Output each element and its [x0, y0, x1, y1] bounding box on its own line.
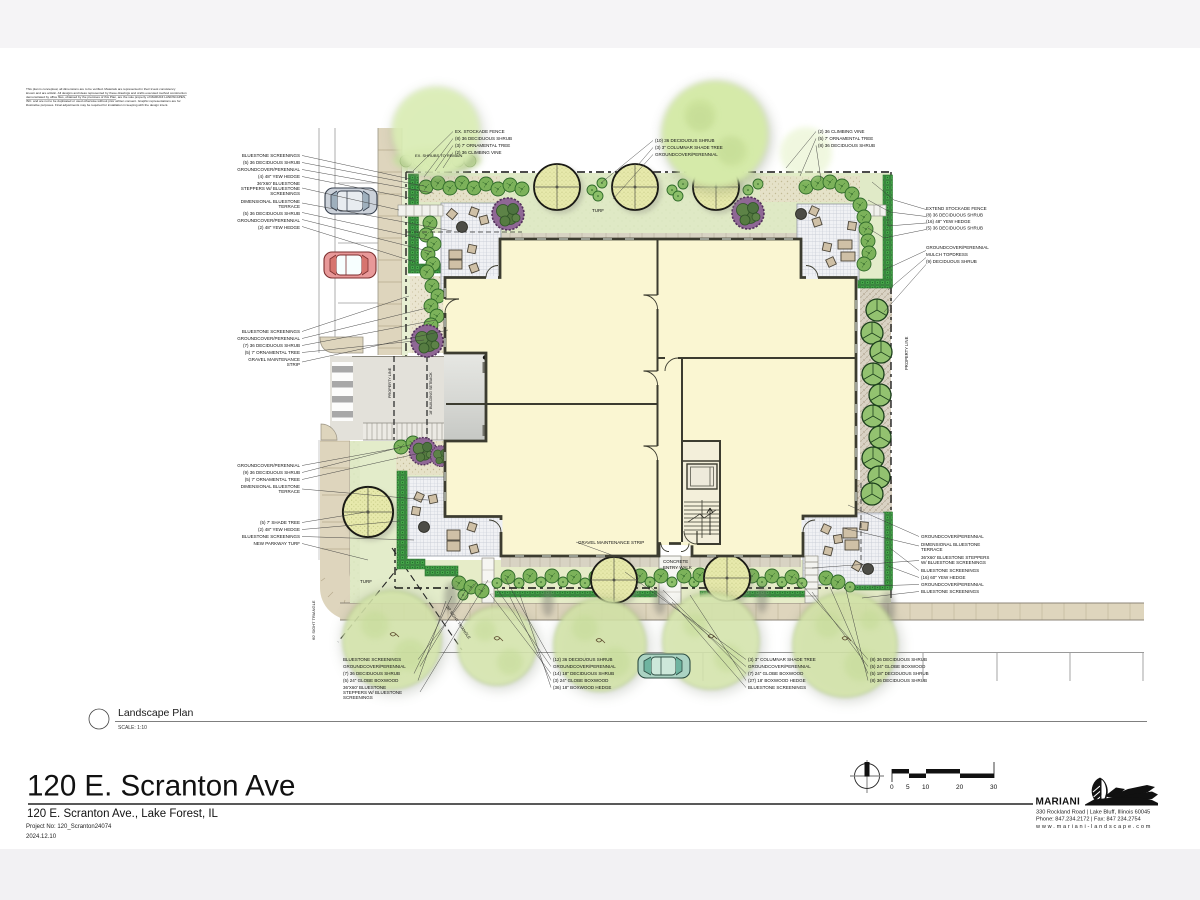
svg-text:(36) 18" BOXWOOD HEDGE: (36) 18" BOXWOOD HEDGE: [553, 685, 611, 690]
svg-text:(2) 36 CLIMBING VINE: (2) 36 CLIMBING VINE: [818, 129, 865, 134]
svg-text:(16) 60" YEW HEDGE: (16) 60" YEW HEDGE: [921, 575, 966, 580]
svg-text:MULCH TOPDRESS: MULCH TOPDRESS: [926, 252, 968, 257]
svg-text:Phone: 847.234.2172 | Fax: 847: Phone: 847.234.2172 | Fax: 847 234.2754: [1036, 817, 1141, 823]
svg-text:GROUNDCOVER/PERENNIAL: GROUNDCOVER/PERENNIAL: [237, 336, 300, 341]
svg-text:illustrative purposes. Final a: illustrative purposes. Final adjustments…: [26, 103, 168, 107]
svg-text:TERRACE: TERRACE: [278, 489, 300, 494]
svg-text:SCREENINGS: SCREENINGS: [343, 695, 373, 700]
svg-text:(8) 36 DECIDUOUS SHRUB: (8) 36 DECIDUOUS SHRUB: [870, 678, 927, 683]
svg-text:(7) 36 DECIDUOUS SHRUB: (7) 36 DECIDUOUS SHRUB: [343, 671, 400, 676]
svg-text:120 E. Scranton Ave: 120 E. Scranton Ave: [27, 770, 295, 803]
svg-text:(5) 7' SHADE TREE: (5) 7' SHADE TREE: [260, 520, 300, 525]
svg-text:GROUNDCOVER/PERENNIAL: GROUNDCOVER/PERENNIAL: [237, 463, 300, 468]
svg-text:(5) 36 DECIDUOUS SHRUB: (5) 36 DECIDUOUS SHRUB: [243, 211, 300, 216]
svg-text:GRAVEL MAINTENANCE STRIP: GRAVEL MAINTENANCE STRIP: [578, 540, 644, 545]
svg-text:BLUESTONE SCREENINGS: BLUESTONE SCREENINGS: [748, 685, 806, 690]
svg-text:(5) 18" DECIDUOUS SHRUB: (5) 18" DECIDUOUS SHRUB: [870, 671, 929, 676]
svg-text:(5) 24" GLOBE BOXWOOD: (5) 24" GLOBE BOXWOOD: [343, 678, 399, 683]
svg-text:0: 0: [890, 784, 894, 791]
svg-text:(8) 36 DECIDUOUS SHRUB: (8) 36 DECIDUOUS SHRUB: [818, 143, 875, 148]
svg-text:www.mariani-landscape.com: www.mariani-landscape.com: [1035, 824, 1152, 830]
svg-text:(5) 36 DECIDUOUS SHRUB: (5) 36 DECIDUOUS SHRUB: [926, 226, 983, 231]
svg-text:5: 5: [906, 784, 910, 791]
svg-text:(3) 7' ORNAMENTAL TREE: (3) 7' ORNAMENTAL TREE: [455, 143, 510, 148]
svg-text:TURF: TURF: [592, 208, 604, 213]
svg-text:(3) 3" COLUMNAR SHADE TREE: (3) 3" COLUMNAR SHADE TREE: [655, 145, 723, 150]
svg-text:(4) 48" YEW HEDGE: (4) 48" YEW HEDGE: [258, 174, 300, 179]
svg-text:EX. SHRUBS TO REMAIN: EX. SHRUBS TO REMAIN: [415, 153, 463, 158]
svg-text:GROUNDCOVER/PERENNIAL: GROUNDCOVER/PERENNIAL: [237, 218, 300, 223]
svg-text:GROUNDCOVER/PERENNIAL: GROUNDCOVER/PERENNIAL: [343, 664, 406, 669]
svg-text:EX. STOCKADE FENCE: EX. STOCKADE FENCE: [455, 129, 505, 134]
svg-text:10: 10: [922, 784, 930, 791]
svg-text:Landscape Plan: Landscape Plan: [118, 707, 193, 719]
svg-text:GROUNDCOVER/PERENNIAL: GROUNDCOVER/PERENNIAL: [237, 167, 300, 172]
svg-text:SCREENINGS: SCREENINGS: [270, 191, 300, 196]
svg-text:(7) 24" GLOBE BOXWOOD: (7) 24" GLOBE BOXWOOD: [748, 671, 804, 676]
svg-text:(3) 24" GLOBE BOXWOOD: (3) 24" GLOBE BOXWOOD: [553, 678, 609, 683]
svg-text:(9) DECIDUOUS SHRUB: (9) DECIDUOUS SHRUB: [926, 259, 977, 264]
svg-text:(5) 24" GLOBE BOXWOOD: (5) 24" GLOBE BOXWOOD: [870, 664, 926, 669]
svg-text:GROUNDCOVER/PERENNIAL: GROUNDCOVER/PERENNIAL: [926, 245, 989, 250]
svg-text:ENTRY WALK: ENTRY WALK: [663, 565, 692, 570]
svg-text:GROUNDCOVER/PERENNIAL: GROUNDCOVER/PERENNIAL: [553, 664, 616, 669]
svg-text:PROPERTY LINE: PROPERTY LINE: [904, 336, 909, 370]
svg-text:60' SIGHT TRIANGLE: 60' SIGHT TRIANGLE: [311, 600, 316, 640]
svg-text:TURF: TURF: [360, 579, 372, 584]
svg-text:TERRACE: TERRACE: [921, 547, 943, 552]
svg-text:(2) 48" YEW HEDGE: (2) 48" YEW HEDGE: [258, 527, 300, 532]
svg-text:(8) 36 DECIDUOUS SHRUB: (8) 36 DECIDUOUS SHRUB: [870, 657, 927, 662]
svg-text:2024.12.10: 2024.12.10: [26, 834, 57, 840]
svg-text:(8) 36 DECIDUOUS SHRUB: (8) 36 DECIDUOUS SHRUB: [455, 136, 512, 141]
svg-text:TERRACE: TERRACE: [278, 204, 300, 209]
svg-text:BLUESTONE SCREENINGS: BLUESTONE SCREENINGS: [343, 657, 401, 662]
svg-text:GROUNDCOVER/PERENNIAL: GROUNDCOVER/PERENNIAL: [921, 582, 984, 587]
svg-text:30: 30: [990, 784, 998, 791]
svg-text:BLUESTONE SCREENINGS: BLUESTONE SCREENINGS: [242, 329, 300, 334]
svg-text:CONCRETE: CONCRETE: [663, 559, 688, 564]
svg-text:(5) 36 DECIDUOUS SHRUB: (5) 36 DECIDUOUS SHRUB: [243, 160, 300, 165]
svg-text:(5) 7' ORNAMENTAL TREE: (5) 7' ORNAMENTAL TREE: [245, 477, 300, 482]
svg-text:(8) 36 DECIDUOUS SHRUB: (8) 36 DECIDUOUS SHRUB: [926, 213, 983, 218]
svg-text:GROUNDCOVER/PERENNIAL: GROUNDCOVER/PERENNIAL: [921, 534, 984, 539]
svg-text:(3) 3" COLUMNAR SHADE TREE: (3) 3" COLUMNAR SHADE TREE: [748, 657, 816, 662]
svg-text:20: 20: [956, 784, 964, 791]
svg-text:GROUNDCOVER/PERENNIAL: GROUNDCOVER/PERENNIAL: [655, 152, 718, 157]
svg-text:(2) 48" YEW HEDGE: (2) 48" YEW HEDGE: [258, 225, 300, 230]
svg-text:Project No: 120_Scranton24074: Project No: 120_Scranton24074: [26, 824, 112, 830]
svg-text:NEW PARKWAY TURF: NEW PARKWAY TURF: [253, 541, 300, 546]
svg-text:BLUESTONE SCREENINGS: BLUESTONE SCREENINGS: [242, 534, 300, 539]
svg-text:18' BUILDING SETBACK: 18' BUILDING SETBACK: [429, 372, 433, 415]
svg-text:(5) 7' ORNAMENTAL TREE: (5) 7' ORNAMENTAL TREE: [818, 136, 873, 141]
svg-text:MARIANI: MARIANI: [1036, 797, 1081, 808]
svg-text:STRIP: STRIP: [287, 362, 300, 367]
svg-text:(12) 36 DECIDUOUS SHRUB: (12) 36 DECIDUOUS SHRUB: [553, 657, 613, 662]
svg-text:SCALE: 1:10: SCALE: 1:10: [118, 725, 147, 731]
svg-text:BLUESTONE SCREENINGS: BLUESTONE SCREENINGS: [921, 568, 979, 573]
svg-text:BLUESTONE SCREENINGS: BLUESTONE SCREENINGS: [242, 153, 300, 158]
svg-text:EXTEND STOCKADE FENCE: EXTEND STOCKADE FENCE: [926, 206, 987, 211]
svg-text:W/ BLUESTONE SCREENINGS: W/ BLUESTONE SCREENINGS: [921, 560, 986, 565]
svg-text:BLUESTONE SCREENINGS: BLUESTONE SCREENINGS: [921, 589, 979, 594]
svg-text:330 Rockland Road | Lake Bluff: 330 Rockland Road | Lake Bluff, Illinois…: [1036, 810, 1150, 816]
svg-text:(7) 36 DECIDUOUS SHRUB: (7) 36 DECIDUOUS SHRUB: [243, 343, 300, 348]
svg-text:(5) 7' ORNAMENTAL TREE: (5) 7' ORNAMENTAL TREE: [245, 350, 300, 355]
svg-text:PROPERTY LINE: PROPERTY LINE: [388, 367, 392, 398]
svg-text:(14) 18" DECIDUOUS SHRUB: (14) 18" DECIDUOUS SHRUB: [553, 671, 614, 676]
svg-text:(27) 18' BOXWOOD HEDGE: (27) 18' BOXWOOD HEDGE: [748, 678, 806, 683]
svg-text:120 E. Scranton Ave., Lake For: 120 E. Scranton Ave., Lake Forest, IL: [27, 808, 219, 820]
svg-text:(9) 36 DECIDUOUS SHRUB: (9) 36 DECIDUOUS SHRUB: [243, 470, 300, 475]
svg-text:(10) 36 DECIDUOUS SHRUB: (10) 36 DECIDUOUS SHRUB: [655, 138, 715, 143]
svg-text:GROUNDCOVER/PERENNIAL: GROUNDCOVER/PERENNIAL: [748, 664, 811, 669]
svg-text:(16) 48" YEW HEDGE: (16) 48" YEW HEDGE: [926, 219, 971, 224]
